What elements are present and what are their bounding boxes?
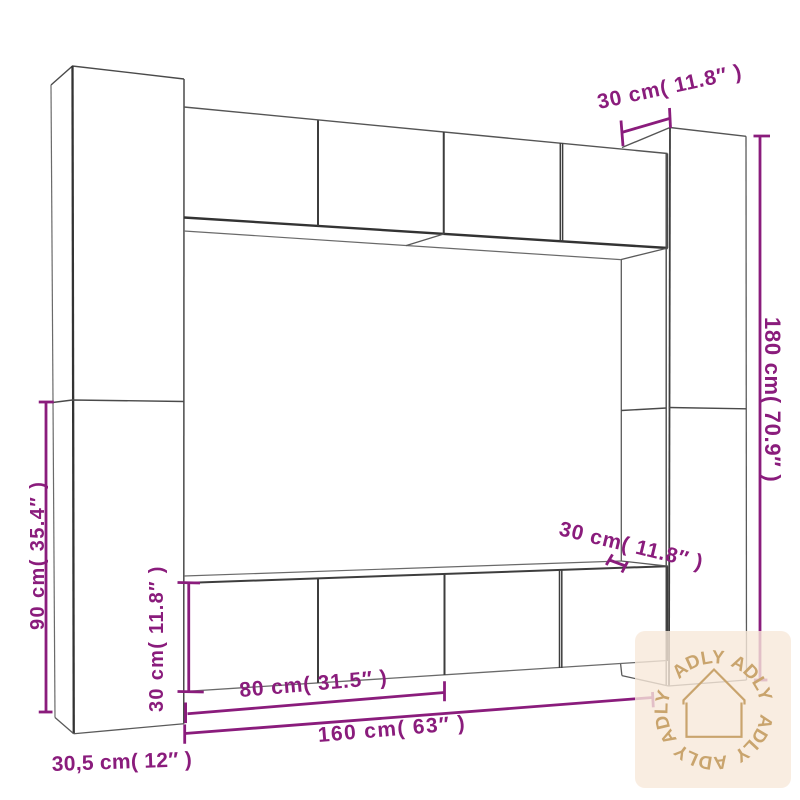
svg-text:30 cm( 11.8″ ): 30 cm( 11.8″ ): [146, 565, 168, 712]
svg-text:30,5 cm( 12″ ): 30,5 cm( 12″ ): [51, 748, 192, 776]
svg-text:180 cm( 70.9″ ): 180 cm( 70.9″ ): [760, 317, 785, 482]
svg-text:90 cm( 35.4″ ): 90 cm( 35.4″ ): [27, 481, 49, 630]
